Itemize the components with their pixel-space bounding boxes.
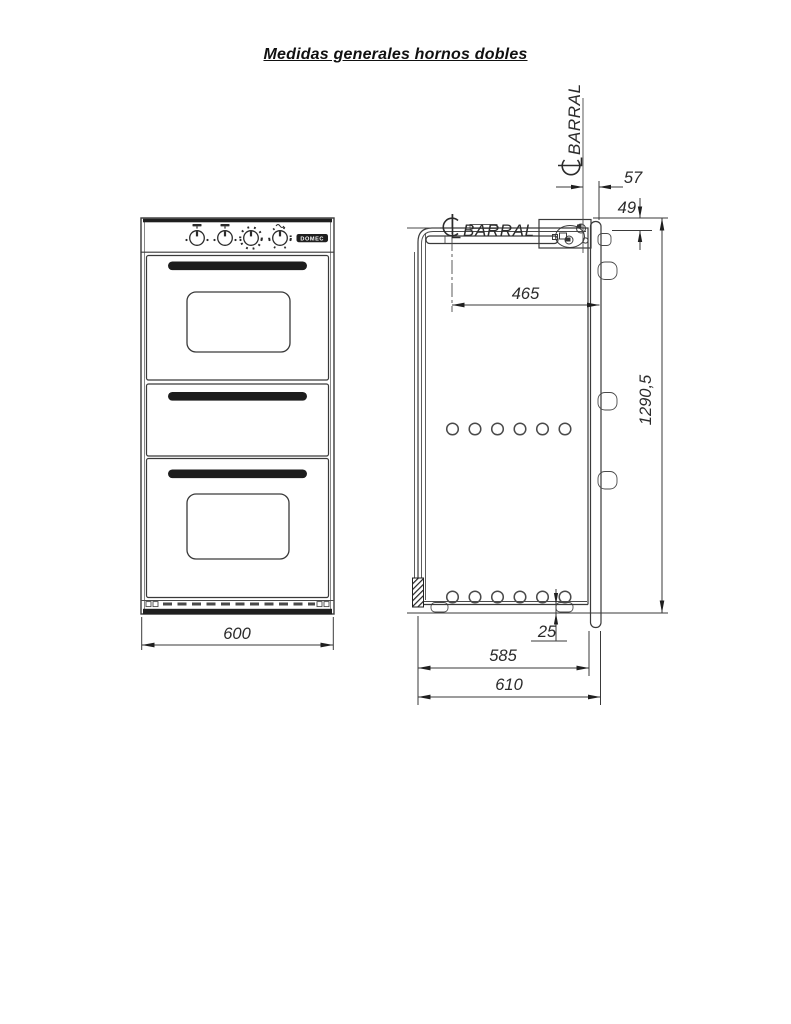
top-trim-strip xyxy=(143,219,332,223)
upper-door-handle xyxy=(168,262,307,271)
barral-label-vertical: BARRAL xyxy=(565,83,584,155)
brand-badge: DOMEC xyxy=(297,234,329,242)
dim-label-1290-5: 1290,5 xyxy=(637,374,655,425)
front-view: DOMEC xyxy=(141,218,334,650)
side-body-outline xyxy=(418,228,588,605)
dim-label-25: 25 xyxy=(537,623,557,641)
upper-door-window xyxy=(187,292,290,352)
technical-drawing: DOMEC xyxy=(0,0,791,1024)
base-trim-strip xyxy=(143,609,332,615)
side-view xyxy=(407,220,668,628)
front-width-dimension: 600 xyxy=(142,617,334,650)
dim-label-610: 610 xyxy=(495,676,523,694)
dim-label-585: 585 xyxy=(489,647,517,665)
mounting-tab-small xyxy=(598,234,611,246)
dim-label-465: 465 xyxy=(512,285,540,303)
centerline-icon xyxy=(558,158,582,175)
lower-door-window xyxy=(187,494,289,559)
dim-label-49: 49 xyxy=(618,199,636,217)
barral-label-horizontal: BARRAL xyxy=(463,221,535,240)
dim-label-600: 600 xyxy=(223,625,251,643)
dim-465: 465 xyxy=(452,285,600,307)
drawing-page: Medidas generales hornos dobles xyxy=(0,0,791,1024)
dim-49: 49 xyxy=(593,198,668,250)
side-body-inner-line xyxy=(422,232,587,603)
gasket-hatch-block xyxy=(413,578,424,607)
dim-1290-5: 1290,5 xyxy=(637,218,664,613)
centerline-icon xyxy=(443,214,460,238)
dim-label-57: 57 xyxy=(624,169,643,187)
barral-centerline-label-top: BARRAL xyxy=(558,83,584,174)
middle-door-handle xyxy=(168,392,307,401)
barral-centerline-label-front: BARRAL xyxy=(407,214,535,240)
vent-holes-upper-row xyxy=(447,423,571,435)
lower-door-handle xyxy=(168,470,307,479)
back-panel xyxy=(591,222,602,628)
brand-label: DOMEC xyxy=(300,236,324,242)
